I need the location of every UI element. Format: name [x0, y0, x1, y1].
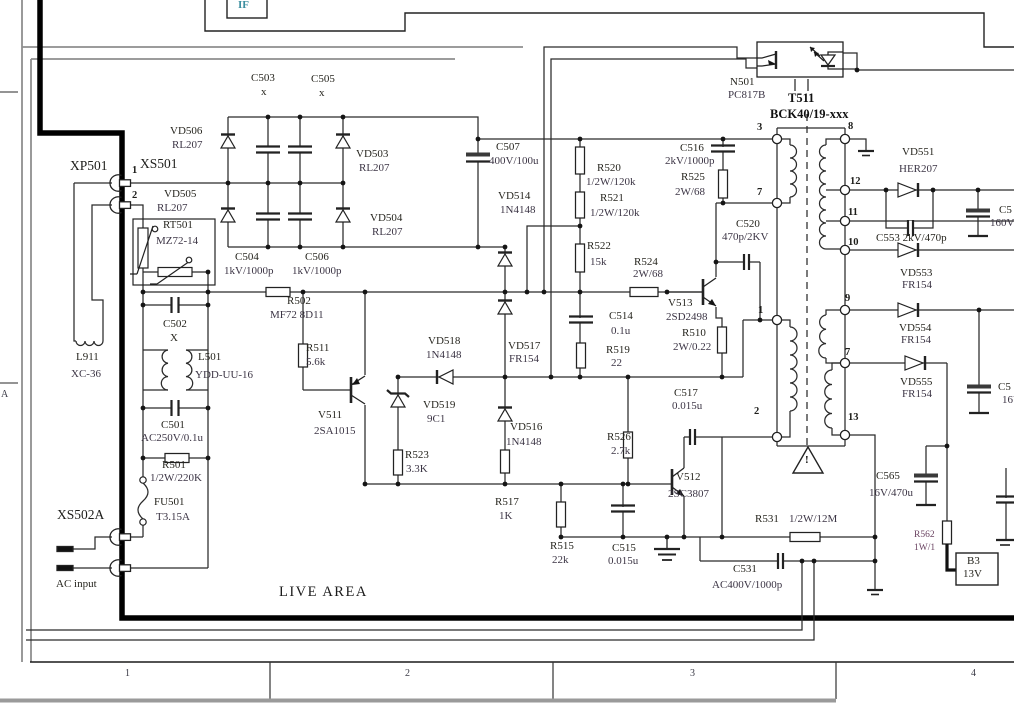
label-r501: R501	[162, 460, 186, 471]
label-c531: C531	[733, 564, 757, 575]
label-c505-value: x	[319, 88, 325, 99]
label-c5-cut2: C5	[998, 382, 1011, 393]
label-t511-pin-9: 9	[845, 294, 850, 304]
label-vd517-value: FR154	[509, 354, 539, 365]
label-r523-value: 3.3K	[406, 464, 428, 475]
label-c501-value: AC250V/0.1u	[141, 433, 203, 444]
b3-feed-wire	[947, 544, 956, 570]
label-r522-value: 15k	[590, 257, 607, 268]
label-r517-value: 1K	[499, 511, 512, 522]
label-c503: C503	[251, 73, 275, 84]
label-c506-value: 1kV/1000p	[292, 266, 342, 277]
label-r524-value: 2W/68	[633, 269, 663, 280]
label-r510-value: 2W/0.22	[673, 342, 711, 353]
label-r511-value: 5.6k	[306, 357, 325, 368]
label-r519-value: 22	[611, 358, 622, 369]
live-area-barrier	[40, 0, 1014, 618]
label-vd504: VD504	[370, 213, 402, 224]
footer-zone-1: 1	[125, 669, 130, 679]
label-vd553-value: FR154	[902, 280, 932, 291]
label-r522: R522	[587, 241, 611, 252]
label-vd505-value: RL207	[157, 203, 188, 214]
label-c501: C501	[161, 420, 185, 431]
label-v512-value: 2SC3807	[668, 489, 709, 500]
label-b3: B3	[967, 556, 980, 567]
label-xs502a: XS502A	[57, 508, 104, 521]
label-warning-mark: !	[805, 455, 809, 466]
schematic-sheet: { "labels": { "if_block": "IF", "n501": …	[0, 0, 1014, 711]
label-if-block: IF	[238, 0, 249, 11]
label-t511-pin-1: 1	[758, 306, 763, 316]
optocoupler-n501	[757, 42, 843, 77]
label-t511-pin-2: 2	[754, 407, 759, 417]
label-vd503-value: RL207	[359, 163, 390, 174]
label-l911-value: XC-36	[71, 369, 101, 380]
label-vd554: VD554	[899, 323, 931, 334]
transformer-t511	[772, 79, 849, 452]
label-vd553: VD553	[900, 268, 932, 279]
label-v512: V512	[676, 472, 700, 483]
label-c516-value: 2kV/1000p	[665, 156, 715, 167]
label-vd503: VD503	[356, 149, 388, 160]
label-fu501: FU501	[154, 497, 185, 508]
label-r515-value: 22k	[552, 555, 569, 566]
label-r524: R524	[634, 257, 658, 268]
label-c507: C507	[496, 142, 520, 153]
label-c531-value: AC400V/1000p	[712, 580, 782, 591]
label-r517: R517	[495, 497, 519, 508]
label-c553: C553 2kV/470p	[876, 233, 947, 244]
label-t511-pin-10: 10	[848, 238, 859, 248]
label-t511-pin-12: 12	[850, 177, 861, 187]
label-t511-pin-7: 7	[757, 188, 762, 198]
label-r501-value: 1/2W/220K	[150, 473, 202, 484]
label-c506: C506	[305, 252, 329, 263]
label-vd517: VD517	[508, 341, 540, 352]
label-r525: R525	[681, 172, 705, 183]
label-v513: V513	[668, 298, 692, 309]
label-vd505: VD505	[164, 189, 196, 200]
label-c502: C502	[163, 319, 187, 330]
label-l501-value: YDD-UU-16	[195, 370, 253, 381]
label-vd555: VD555	[900, 377, 932, 388]
label-t511-value: BCK40/19-xxx	[770, 108, 848, 120]
label-c516: C516	[680, 143, 704, 154]
label-b3-value: 13V	[963, 569, 982, 580]
label-r562-value: 1W/1	[914, 544, 935, 553]
label-c5-cut1: C5	[999, 205, 1012, 216]
label-t511-pin-13: 13	[848, 413, 859, 423]
label-r520: R520	[597, 163, 621, 174]
label-r523: R523	[405, 450, 429, 461]
label-r526-value: 2.7k	[611, 446, 630, 457]
label-xs501-pin2: 2	[132, 191, 137, 201]
label-r521: R521	[600, 193, 624, 204]
footer-zone-4: 4	[971, 669, 976, 679]
label-vd519: VD519	[423, 400, 455, 411]
label-vd554-value: FR154	[901, 335, 931, 346]
footer-zone-3: 3	[690, 669, 695, 679]
label-zone-a: A	[1, 390, 8, 400]
label-r520-value: 1/2W/120k	[586, 177, 636, 188]
label-c514: C514	[609, 311, 633, 322]
label-c5-cut2-value: 16V	[1002, 395, 1014, 406]
label-r515: R515	[550, 541, 574, 552]
label-vd516-value: 1N4148	[506, 437, 541, 448]
top-interconnect-wire	[205, 0, 1014, 47]
label-r521-value: 1/2W/120k	[590, 208, 640, 219]
label-vd506: VD506	[170, 126, 202, 137]
label-c505: C505	[311, 74, 335, 85]
label-c565-value: 16V/470u	[869, 488, 913, 499]
label-c515: C515	[612, 543, 636, 554]
label-t511-pin-3: 3	[757, 123, 762, 133]
label-vd506-value: RL207	[172, 140, 203, 151]
footer-zone-2: 2	[405, 669, 410, 679]
ground-icon	[654, 151, 1014, 595]
label-vd516: VD516	[510, 422, 542, 433]
label-xs501-pin1: 1	[132, 166, 137, 176]
label-c504-value: 1kV/1000p	[224, 266, 274, 277]
label-vd514: VD514	[498, 191, 530, 202]
label-vd504-value: RL207	[372, 227, 403, 238]
label-l911: L911	[76, 352, 99, 363]
label-vd514-value: 1N4148	[500, 205, 535, 216]
label-v511: V511	[318, 410, 342, 421]
label-r562: R562	[914, 531, 935, 540]
label-r502-value: MF72 8D11	[270, 310, 324, 321]
label-r519: R519	[606, 345, 630, 356]
ac-plug-prong	[57, 566, 73, 571]
label-xp501: XP501	[70, 159, 108, 172]
label-r502: R502	[287, 296, 311, 307]
label-r531-value: 1/2W/12M	[789, 514, 837, 525]
label-vd551: VD551	[902, 147, 934, 158]
label-fu501-value: T3.15A	[156, 512, 190, 523]
label-c517-value: 0.015u	[672, 401, 702, 412]
label-c5-cut1-value: 160V	[990, 218, 1014, 229]
label-c517: C517	[674, 388, 698, 399]
label-t511-pin-11: 11	[848, 208, 858, 218]
label-r531: R531	[755, 514, 779, 525]
label-rt501: RT501	[163, 220, 193, 231]
label-vd518-value: 1N4148	[426, 350, 461, 361]
label-xs501: XS501	[140, 157, 178, 170]
label-vd551-value: HER207	[899, 164, 938, 175]
label-c503-value: x	[261, 87, 267, 98]
label-t511: T511	[788, 92, 814, 104]
label-c520: C520	[736, 219, 760, 230]
label-r526: R526	[607, 432, 631, 443]
label-live-area: LIVE AREA	[279, 585, 368, 599]
label-ac-input: AC input	[56, 579, 97, 590]
label-n501-value: PC817B	[728, 90, 765, 101]
label-c507-value: 400V/100u	[489, 156, 539, 167]
label-r510: R510	[682, 328, 706, 339]
label-n501: N501	[730, 77, 754, 88]
label-c565: C565	[876, 471, 900, 482]
label-c504: C504	[235, 252, 259, 263]
label-vd519-value: 9C1	[427, 414, 445, 425]
label-l501: L501	[198, 352, 221, 363]
label-vd555-value: FR154	[902, 389, 932, 400]
label-t511-pin-7b: 7	[845, 348, 850, 358]
label-v513-value: 2SD2498	[666, 312, 708, 323]
ac-plug-prong	[57, 547, 73, 552]
label-v511-value: 2SA1015	[314, 426, 356, 437]
label-rt501-value: MZ72-14	[156, 236, 198, 247]
schematic-canvas	[0, 0, 1014, 711]
label-c502-value: X	[170, 333, 178, 344]
label-r525-value: 2W/68	[675, 187, 705, 198]
label-c520-value: 470p/2KV	[722, 232, 768, 243]
label-c514-value: 0.1u	[611, 326, 630, 337]
label-t511-pin-8: 8	[848, 122, 853, 132]
label-c515-value: 0.015u	[608, 556, 638, 567]
label-r511: R511	[306, 343, 329, 354]
label-vd518: VD518	[428, 336, 460, 347]
